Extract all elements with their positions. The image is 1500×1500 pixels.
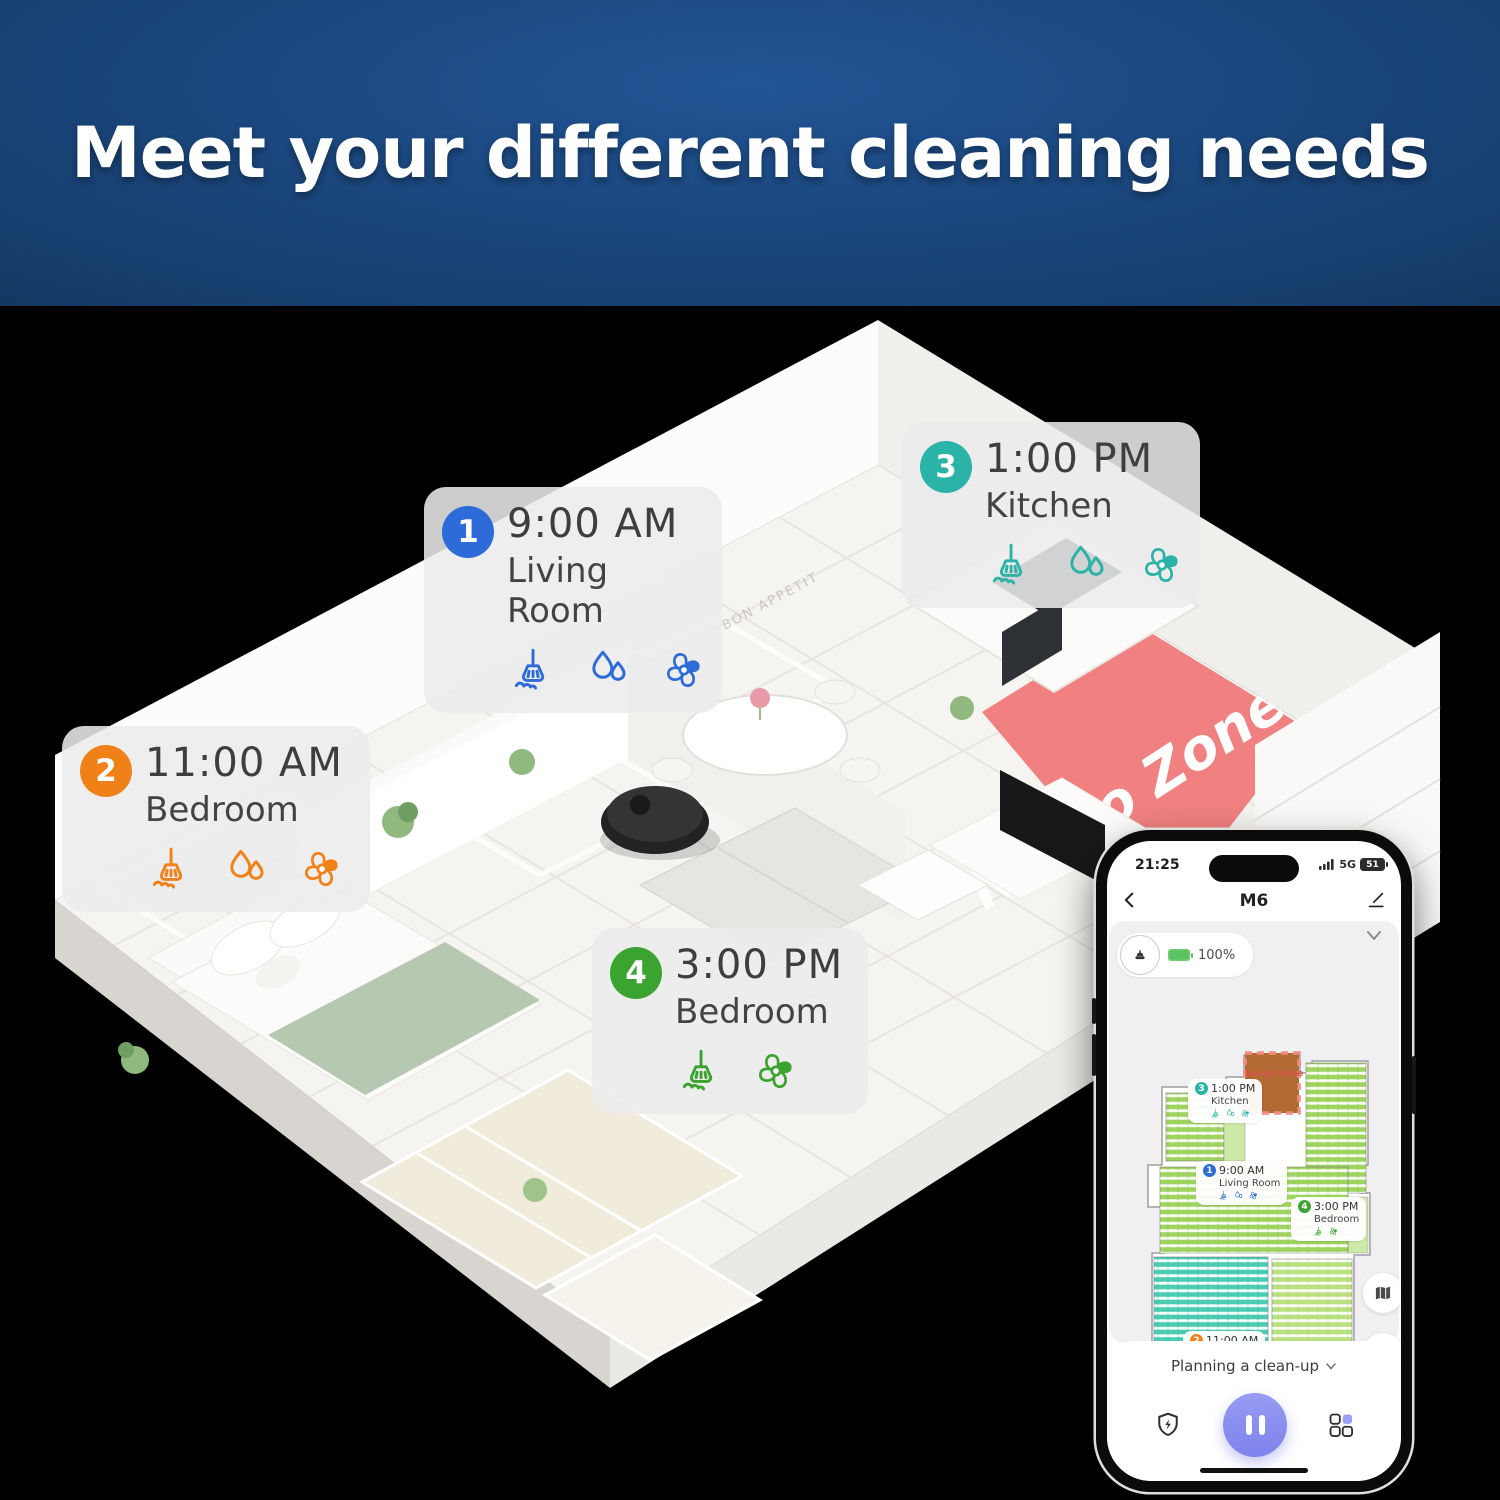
step-badge: 1 xyxy=(442,506,494,558)
control-row xyxy=(1107,1393,1401,1457)
map-marker-bedroom-pm[interactable]: 4 3:00 PM Bedroom xyxy=(1291,1197,1366,1241)
broom-icon xyxy=(507,645,557,695)
broom-icon xyxy=(1313,1226,1324,1237)
charge-button[interactable] xyxy=(1153,1410,1183,1440)
flower-vase xyxy=(750,688,770,708)
broom-icon xyxy=(985,540,1035,590)
broom-icon xyxy=(145,844,195,894)
robot-status-pill[interactable]: 100% xyxy=(1117,933,1253,977)
schedule-time: 1:00 PM xyxy=(985,437,1187,482)
pause-icon xyxy=(1246,1415,1252,1435)
schedule-room: Bedroom xyxy=(675,992,843,1032)
edit-icon[interactable] xyxy=(1365,889,1387,911)
marker-room: Living Room xyxy=(1219,1178,1280,1189)
fan-icon xyxy=(1137,540,1187,590)
fan-icon xyxy=(1240,1108,1251,1119)
dynamic-island xyxy=(1209,855,1299,882)
map-panel: 100% xyxy=(1109,921,1399,1343)
cleaning-mode-dropdown[interactable]: Planning a clean-up xyxy=(1107,1341,1401,1375)
water-drops-icon xyxy=(1233,1190,1244,1201)
room-grid-icon xyxy=(1327,1411,1355,1439)
fan-icon xyxy=(659,645,709,695)
step-badge: 4 xyxy=(610,947,662,999)
fan-icon xyxy=(297,844,347,894)
volume-up-button[interactable] xyxy=(1092,998,1096,1024)
status-battery-icon: 51 xyxy=(1360,858,1385,871)
power-button[interactable] xyxy=(1412,1056,1416,1114)
status-time: 21:25 xyxy=(1135,857,1180,873)
signal-icon xyxy=(1318,858,1335,871)
page-title: M6 xyxy=(1107,891,1401,911)
robot-avatar xyxy=(1120,935,1160,975)
map-view-button[interactable] xyxy=(1363,1273,1401,1313)
marker-badge: 1 xyxy=(1203,1164,1216,1177)
water-drops-icon xyxy=(1061,540,1111,590)
room-select-button[interactable] xyxy=(1327,1411,1355,1439)
marker-room: Kitchen xyxy=(1211,1096,1255,1107)
robot-icon xyxy=(1130,945,1150,965)
schedule-label-living-room: 1 9:00 AM Living Room xyxy=(424,487,722,713)
broom-icon xyxy=(1218,1190,1229,1201)
fan-icon xyxy=(1248,1190,1259,1201)
schedule-room: Bedroom xyxy=(145,790,347,830)
marker-room: Bedroom xyxy=(1314,1214,1359,1225)
schedule-label-bedroom-pm: 4 3:00 PM Bedroom xyxy=(592,928,868,1114)
water-drops-icon xyxy=(583,645,633,695)
battery-icon xyxy=(1168,949,1190,961)
pause-button[interactable] xyxy=(1223,1393,1287,1457)
map-no-go-label: No-go Zone xyxy=(1243,1069,1305,1079)
map-marker-living-room[interactable]: 1 9:00 AM Living Room xyxy=(1196,1161,1287,1205)
fan-icon xyxy=(751,1046,801,1096)
schedule-time: 3:00 PM xyxy=(675,943,843,988)
banner: Meet your different cleaning needs xyxy=(0,0,1500,306)
nav-bar: M6 xyxy=(1107,887,1401,917)
cleaning-mode-label: Planning a clean-up xyxy=(1171,1357,1319,1375)
network-label: 5G xyxy=(1339,858,1356,871)
map-icon xyxy=(1373,1283,1393,1303)
water-drops-icon xyxy=(1225,1108,1236,1119)
schedule-room: Living Room xyxy=(507,551,709,631)
phone-screen: 21:25 5G 51 xyxy=(1107,841,1401,1481)
battery-percent-label: 100% xyxy=(1198,948,1235,963)
schedule-time: 9:00 AM xyxy=(507,502,709,547)
chevron-down-icon[interactable] xyxy=(1363,927,1385,945)
step-badge: 3 xyxy=(920,441,972,493)
marker-time: 1:00 PM xyxy=(1211,1082,1255,1095)
smartphone-mockup: 21:25 5G 51 xyxy=(1096,830,1412,1492)
bottom-sheet: Planning a clean-up xyxy=(1107,1341,1401,1481)
volume-down-button[interactable] xyxy=(1092,1034,1096,1076)
marketing-graphic: Meet your different cleaning needs xyxy=(0,0,1500,1500)
schedule-label-kitchen: 3 1:00 PM Kitchen xyxy=(902,422,1200,608)
status-battery-percent: 51 xyxy=(1366,860,1379,870)
status-bar: 21:25 5G 51 xyxy=(1107,851,1401,883)
schedule-room: Kitchen xyxy=(985,486,1187,526)
caret-down-icon xyxy=(1325,1361,1337,1371)
schedule-label-bedroom-am: 2 11:00 AM Bedroom xyxy=(62,726,370,912)
schedule-time: 11:00 AM xyxy=(145,741,347,786)
marker-badge: 4 xyxy=(1298,1200,1311,1213)
shield-bolt-icon xyxy=(1153,1410,1183,1440)
fan-icon xyxy=(1328,1226,1339,1237)
home-indicator[interactable] xyxy=(1200,1468,1308,1473)
marker-time: 3:00 PM xyxy=(1314,1200,1358,1213)
step-badge: 2 xyxy=(80,745,132,797)
banner-title: Meet your different cleaning needs xyxy=(71,112,1429,194)
map-marker-kitchen[interactable]: 3 1:00 PM Kitchen xyxy=(1188,1079,1262,1123)
marker-badge: 3 xyxy=(1195,1082,1208,1095)
marker-time: 9:00 AM xyxy=(1219,1164,1264,1177)
broom-icon xyxy=(675,1046,725,1096)
water-drops-icon xyxy=(221,844,271,894)
broom-icon xyxy=(1210,1108,1221,1119)
